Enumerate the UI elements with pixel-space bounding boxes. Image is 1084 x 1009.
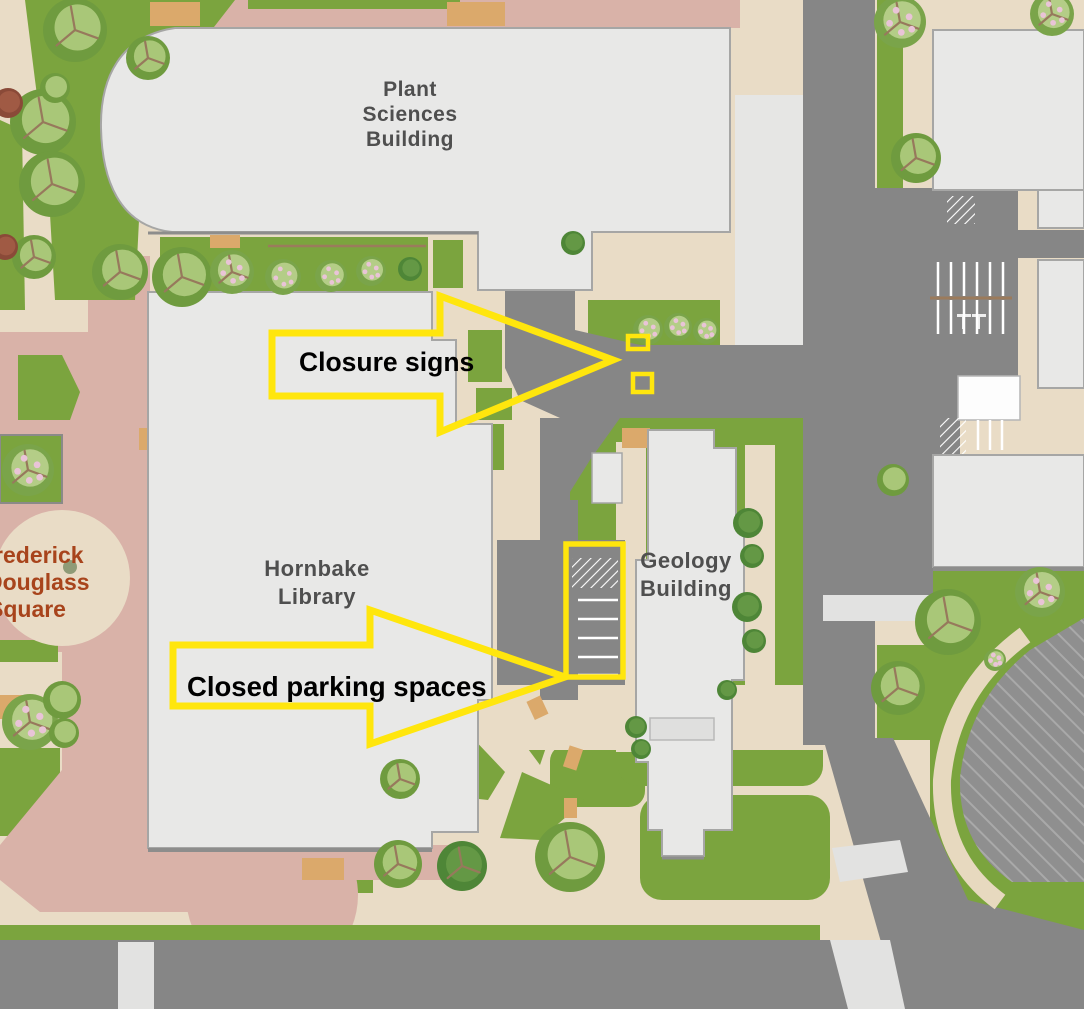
- campus-map: Plant Sciences Building Hornbake Library…: [0, 0, 1084, 1009]
- closed-parking-text: Closed parking spaces: [187, 671, 487, 702]
- plant-sciences-label: Sciences: [362, 103, 457, 126]
- tree-icon: [19, 151, 85, 217]
- tree-icon: [732, 592, 762, 622]
- east-building: [933, 455, 1084, 567]
- douglass-square-label: Square: [0, 596, 66, 622]
- lot-hatch-north: [947, 196, 975, 224]
- flowering-tree-icon: [265, 259, 301, 295]
- tree-icon: [152, 247, 212, 307]
- tree-icon: [740, 544, 764, 568]
- northeast-lot: [875, 188, 1018, 378]
- flowering-tree-icon: [315, 260, 347, 292]
- tree-icon: [126, 36, 170, 80]
- flowering-tree-icon: [2, 444, 54, 496]
- geology-label: Geology: [640, 548, 732, 573]
- lot-kiosk: [958, 376, 1020, 420]
- tree-icon: [631, 739, 651, 759]
- northeast-building: [933, 30, 1084, 190]
- tree-icon: [915, 589, 981, 655]
- tree-icon: [742, 629, 766, 653]
- flowering-tree-icon: [210, 250, 254, 294]
- tree-icon: [871, 661, 925, 715]
- flowering-tree-icon: [1015, 567, 1065, 617]
- small-structure: [650, 718, 714, 740]
- tree-icon: [877, 464, 909, 496]
- douglass-square-label: Frederick: [0, 542, 84, 568]
- tree-icon: [561, 231, 585, 255]
- tree-icon: [733, 508, 763, 538]
- closed-parking-hatch: [572, 558, 618, 588]
- plant-sciences-label: Plant: [383, 78, 437, 101]
- flowering-tree-icon: [984, 649, 1006, 671]
- hornbake-label: Hornbake: [264, 556, 369, 581]
- tree-icon: [398, 257, 422, 281]
- tree-icon: [437, 841, 487, 891]
- east-road: [803, 0, 875, 745]
- tree-icon: [49, 718, 79, 748]
- tree-icon: [43, 681, 81, 719]
- tree-icon: [43, 0, 107, 62]
- hornbake-label: Library: [278, 584, 356, 609]
- flowering-tree-icon: [664, 313, 692, 341]
- flowering-tree-icon: [693, 318, 719, 344]
- geology-building: [636, 430, 744, 856]
- geology-annex: [592, 453, 622, 503]
- tree-icon: [891, 133, 941, 183]
- tree-icon: [12, 235, 56, 279]
- tree-icon: [40, 73, 70, 103]
- tree-icon: [625, 716, 647, 738]
- crosswalk-south: [118, 942, 154, 1009]
- closure-signs-text: Closure signs: [299, 347, 474, 377]
- plant-sciences-label: Building: [366, 128, 454, 151]
- tree-icon: [92, 244, 148, 300]
- tree-icon: [535, 822, 605, 892]
- paved-court: [735, 95, 805, 345]
- geology-label: Building: [640, 576, 732, 601]
- tree-icon: [374, 840, 422, 888]
- flowering-tree-icon: [356, 256, 386, 286]
- tree-icon: [380, 759, 420, 799]
- lot-hatch-mid: [940, 418, 966, 454]
- douglass-square-label: Douglass: [0, 569, 90, 595]
- tree-icon: [717, 680, 737, 700]
